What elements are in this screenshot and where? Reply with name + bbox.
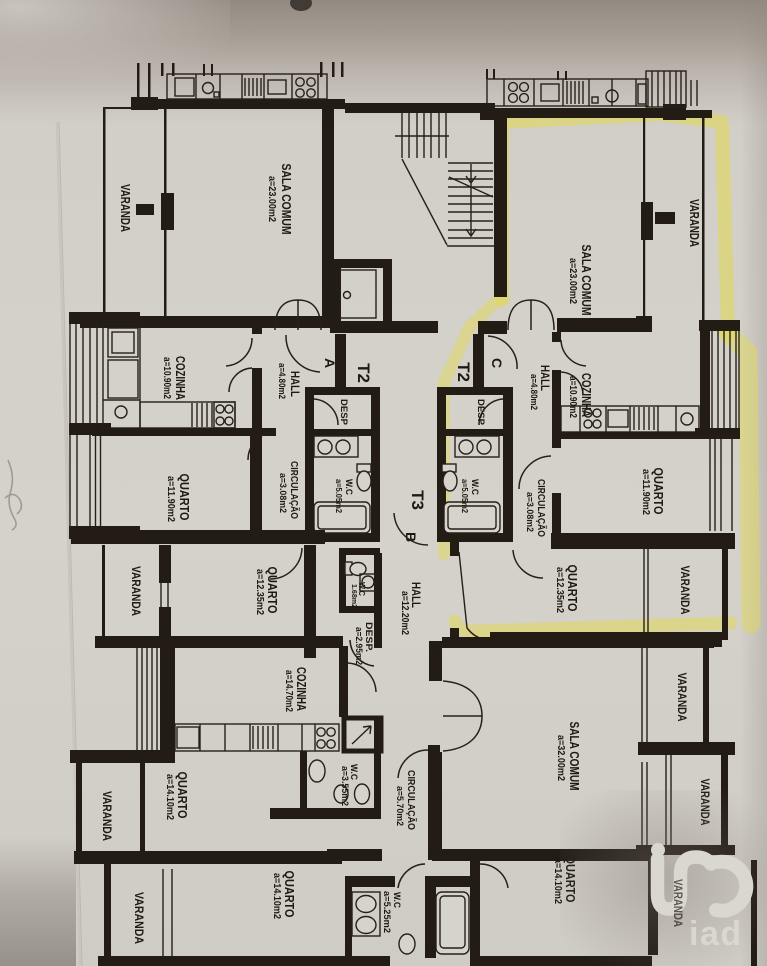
svg-text:COZINHA: COZINHA	[579, 373, 593, 417]
svg-text:HALL: HALL	[288, 371, 302, 397]
svg-text:a=5.05m2: a=5.05m2	[334, 479, 344, 513]
svg-text:A: A	[322, 358, 338, 368]
svg-text:HALL: HALL	[409, 582, 423, 608]
svg-text:a=23.00m2: a=23.00m2	[567, 258, 578, 304]
svg-text:B: B	[403, 532, 419, 542]
svg-text:QUARTO: QUARTO	[265, 567, 280, 614]
svg-text:a=14.70m2: a=14.70m2	[283, 670, 294, 712]
svg-text:a=11.90m2: a=11.90m2	[165, 476, 176, 522]
svg-text:a=11.90m2: a=11.90m2	[640, 469, 651, 515]
svg-text:VARANDA: VARANDA	[100, 791, 114, 841]
svg-text:COZINHA: COZINHA	[294, 667, 308, 711]
svg-text:a=12.20m2: a=12.20m2	[399, 591, 410, 635]
svg-text:QUARTO: QUARTO	[175, 772, 190, 819]
svg-text:a=14.10m2: a=14.10m2	[271, 873, 282, 919]
svg-text:COZINHA: COZINHA	[173, 356, 187, 400]
svg-text:a=5.25m2: a=5.25m2	[382, 891, 392, 933]
svg-text:SALA COMUM: SALA COMUM	[279, 164, 294, 235]
svg-text:VARANDA: VARANDA	[678, 566, 692, 615]
svg-text:VARANDA: VARANDA	[671, 879, 685, 927]
svg-text:a=2.95m2: a=2.95m2	[354, 627, 364, 665]
svg-text:QUARTO: QUARTO	[282, 871, 297, 918]
svg-text:VARANDA: VARANDA	[132, 892, 146, 944]
svg-text:CIRCULAÇÃO: CIRCULAÇÃO	[535, 479, 548, 537]
svg-text:a=5.70m2: a=5.70m2	[395, 786, 405, 826]
svg-text:a=3.55m2: a=3.55m2	[340, 766, 350, 806]
svg-text:QUARTO: QUARTO	[565, 565, 580, 612]
svg-text:QUARTO: QUARTO	[177, 474, 192, 521]
svg-text:CIRCULAÇÃO: CIRCULAÇÃO	[405, 770, 418, 830]
svg-text:C: C	[489, 358, 505, 368]
svg-text:a=10.90m2: a=10.90m2	[567, 376, 578, 418]
svg-text:a=10.90m2: a=10.90m2	[161, 357, 172, 399]
svg-text:a=4.80m2: a=4.80m2	[528, 374, 539, 410]
svg-text:a=5.05m2: a=5.05m2	[460, 479, 470, 513]
svg-text:a=14.10m2: a=14.10m2	[164, 774, 175, 820]
svg-text:a=4.80m2: a=4.80m2	[276, 363, 287, 399]
svg-text:HALL: HALL	[538, 365, 552, 391]
svg-text:DESP: DESP	[476, 399, 486, 425]
svg-text:a=3.08m2: a=3.08m2	[525, 492, 535, 532]
svg-text:iad: iad	[689, 915, 743, 953]
svg-text:T3: T3	[408, 490, 427, 510]
svg-text:1.68m2: 1.68m2	[350, 584, 359, 608]
svg-text:a=32.00m2: a=32.00m2	[555, 735, 566, 781]
svg-text:DESP.: DESP.	[364, 622, 374, 652]
svg-text:a=23.00m2: a=23.00m2	[266, 176, 277, 222]
svg-text:QUARTO: QUARTO	[651, 468, 666, 515]
svg-text:T2: T2	[454, 362, 473, 382]
svg-text:SALA COMUM: SALA COMUM	[567, 722, 582, 791]
svg-text:SALA COMUM: SALA COMUM	[579, 245, 594, 316]
svg-text:CIRCULAÇÃO: CIRCULAÇÃO	[288, 461, 301, 519]
svg-text:a=12.35m2: a=12.35m2	[554, 567, 565, 613]
svg-text:VARANDA: VARANDA	[675, 673, 689, 722]
svg-text:VARANDA: VARANDA	[118, 184, 133, 232]
svg-text:VARANDA: VARANDA	[687, 199, 702, 247]
svg-text:T2: T2	[354, 363, 373, 383]
svg-text:a=12.35m2: a=12.35m2	[254, 569, 265, 615]
svg-text:VARANDA: VARANDA	[129, 566, 143, 616]
svg-text:a=3.08m2: a=3.08m2	[278, 473, 288, 513]
svg-text:DESP: DESP	[339, 399, 349, 425]
